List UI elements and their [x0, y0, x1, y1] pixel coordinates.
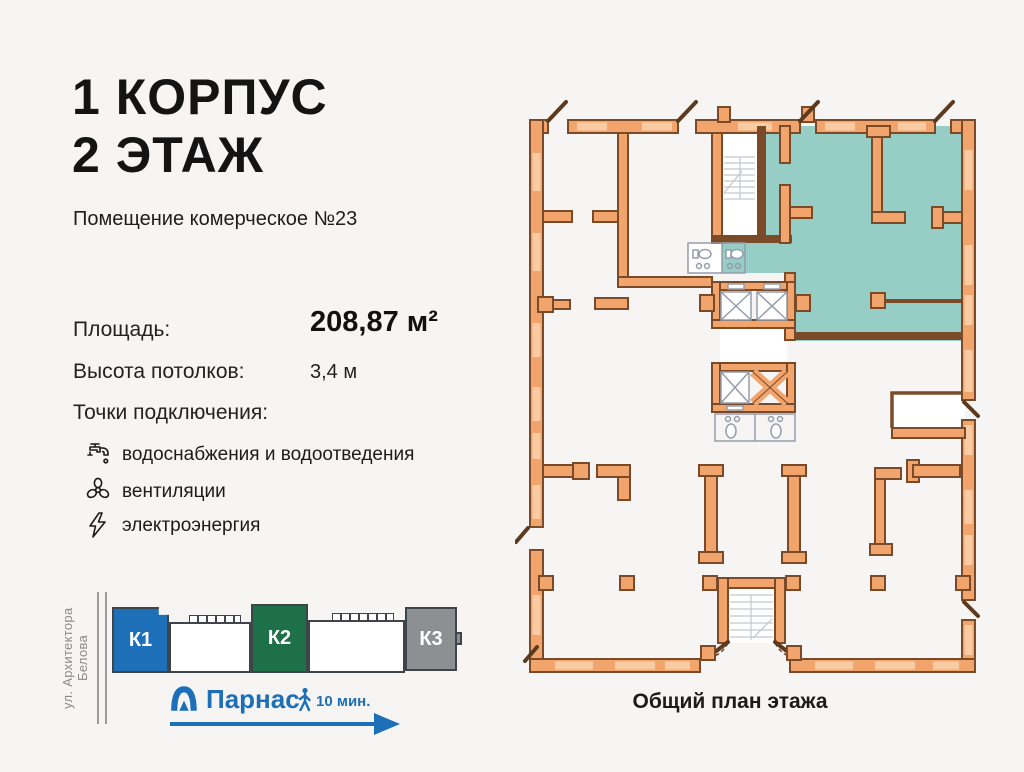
street-line: [105, 592, 107, 724]
faucet-icon: [84, 440, 112, 468]
toilet: [726, 417, 740, 439]
building-connector: [308, 620, 405, 673]
building-k3-label: К3: [419, 628, 442, 651]
lightning-icon: [84, 511, 112, 539]
page-title: 1 КОРПУС 2 ЭТАЖ: [72, 68, 328, 184]
page-subtitle: Помещение комерческое №23: [73, 208, 357, 231]
connection-electricity: электроэнергия: [122, 515, 260, 537]
building-connector: [169, 622, 251, 673]
direction-arrow-head: [374, 713, 400, 735]
toilet: [769, 417, 783, 439]
wc-lower: [715, 414, 795, 441]
building-k1-label: К1: [129, 629, 152, 652]
stairwell-bottom: [718, 578, 785, 643]
direction-arrow: [170, 722, 376, 726]
connections-label: Точки подключения:: [73, 401, 268, 425]
street-line: [97, 592, 99, 724]
area-value: 208,87 м²: [310, 306, 438, 339]
battlement: [189, 615, 241, 623]
flyer: 1 КОРПУС 2 ЭТАЖ Помещение комерческое №2…: [0, 0, 1024, 772]
building-k3: К3: [405, 607, 457, 671]
street-label: ул. Архитектора Белова: [60, 592, 90, 724]
building-k2: К2: [251, 604, 308, 673]
walking-person-icon: [295, 687, 315, 713]
metro-logo-icon: [168, 683, 200, 715]
building-k1: К1: [112, 607, 169, 673]
ceiling-label: Высота потолков:: [73, 360, 245, 384]
page-title-line1: 1 КОРПУС: [72, 68, 328, 126]
page-title-line2: 2 ЭТАЖ: [72, 126, 328, 184]
connection-water: водоснабжения и водоотведения: [122, 444, 414, 466]
area-label: Площадь:: [73, 318, 170, 342]
fan-icon: [84, 476, 112, 504]
entrance-doors: [701, 642, 801, 660]
building-k3-nub: [455, 632, 462, 645]
building-k2-label: К2: [268, 627, 291, 650]
ceiling-value: 3,4 м: [310, 361, 357, 384]
shaft-cross: [753, 372, 787, 403]
plan-caption: Общий план этажа: [520, 690, 940, 714]
floor-plan: [515, 95, 1015, 695]
connection-ventilation: вентиляции: [122, 481, 226, 503]
walk-time: 10 мин.: [316, 693, 370, 710]
metro-name: Парнас: [206, 684, 300, 715]
battlement: [332, 613, 394, 621]
